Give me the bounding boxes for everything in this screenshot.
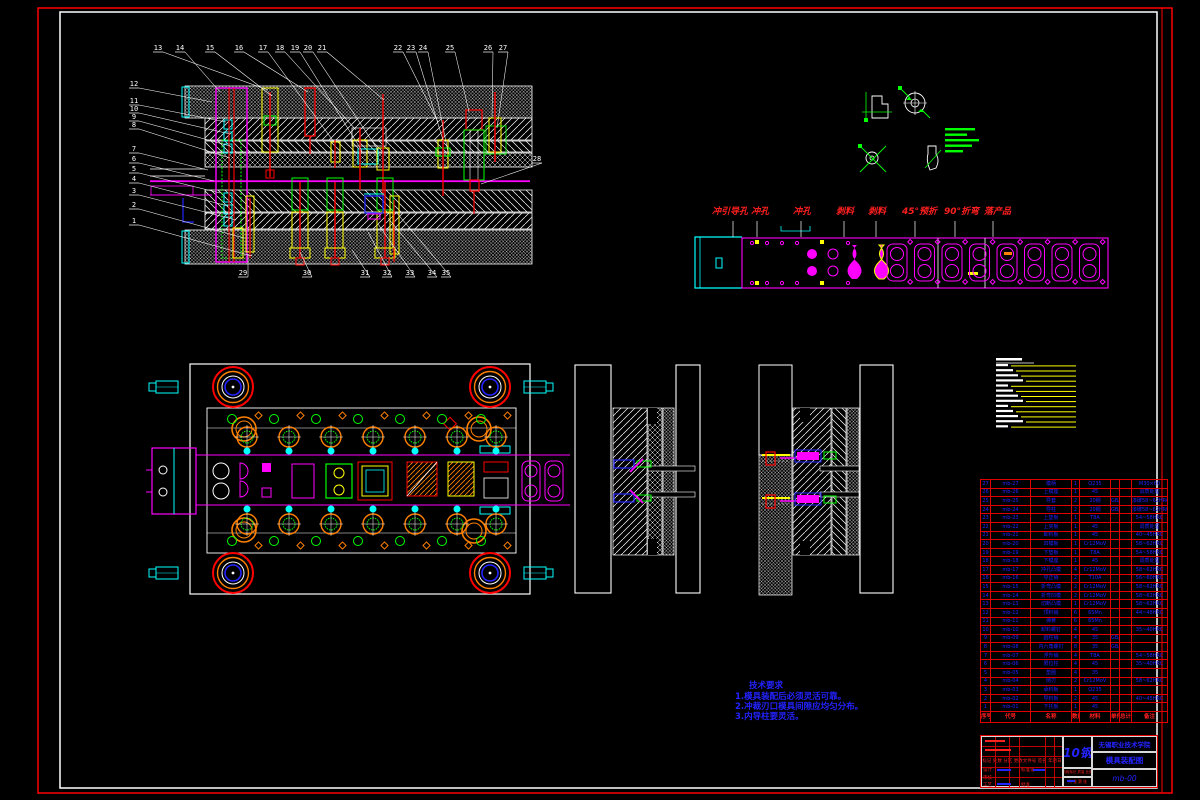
strip-cell-hole	[946, 265, 959, 278]
strip-cell	[997, 244, 1017, 281]
stage-row: 阶段标记 质量 比例	[1063, 768, 1092, 777]
bom-cell	[1120, 703, 1132, 712]
bom-cell	[1111, 480, 1120, 489]
bom-cell: 27	[981, 480, 991, 489]
bom-cell: 35	[1080, 669, 1111, 678]
signature-mark	[997, 783, 1011, 785]
bom-cell: 19	[981, 548, 991, 557]
strip-cell-hole	[891, 265, 904, 278]
bom-cell: Q235	[1080, 686, 1111, 695]
bom-cell: 导料板	[1031, 694, 1072, 703]
bom-cell	[1120, 514, 1132, 523]
bom-row: 1mb-01下托板145	[981, 703, 1168, 712]
bom-cell: Cr12MoV	[1080, 600, 1111, 609]
bom-cell: 导柱	[1031, 505, 1072, 514]
bom-cell	[1111, 686, 1120, 695]
strip-cell	[970, 244, 990, 281]
strip-cell-notch	[990, 239, 995, 244]
legend-text-mark	[996, 405, 1008, 407]
bom-cell	[1111, 540, 1120, 549]
green-annotation-mark	[945, 150, 963, 152]
signature-mark	[985, 740, 1005, 742]
bom-cell: mb-02	[991, 694, 1031, 703]
bom-row: 11mb-11弹簧665Mn	[981, 617, 1168, 626]
bom-cell: 8	[981, 643, 991, 652]
bom-cell	[1120, 548, 1132, 557]
lifter-pin	[328, 506, 335, 513]
bom-cell: 54~58HRC	[1132, 548, 1168, 557]
legend-leader-line	[1026, 381, 1076, 382]
bom-cell: 45	[1080, 557, 1111, 566]
bom-cell: 10	[981, 626, 991, 635]
legend-leader-line	[1026, 422, 1076, 423]
bom-cell: 35	[1080, 643, 1111, 652]
bom-cell: 切断凸模	[1031, 600, 1072, 609]
bom-cell	[1132, 617, 1168, 626]
bom-cell: mb-25	[991, 497, 1031, 506]
diamond-pin	[423, 542, 430, 549]
bom-cell: 18	[981, 557, 991, 566]
bom-cell	[1120, 634, 1132, 643]
bom-cell: 1	[1072, 540, 1080, 549]
bom-cell: 4	[1072, 634, 1080, 643]
bom-cell: mb-18	[991, 557, 1031, 566]
technical-notes: 技术要求 1.模具装配后必须灵活可靠。2.冲裁刃口模具间隙应均匀分布。3.内导柱…	[735, 681, 863, 722]
bom-cell: mb-07	[991, 651, 1031, 660]
bom-cell	[1111, 531, 1120, 540]
bom-cell: 21	[981, 531, 991, 540]
strip-cell-notch	[990, 279, 995, 284]
bom-cell	[1120, 677, 1132, 686]
bom-cell: mb-09	[991, 634, 1031, 643]
bom-cell: mb-13	[991, 600, 1031, 609]
balloon-number: 27	[499, 44, 507, 52]
bom-cell: GB/T 2861	[1111, 505, 1120, 514]
bom-cell: 26	[981, 488, 991, 497]
exit-strip	[522, 461, 563, 501]
bom-cell: mb-27	[991, 480, 1031, 489]
titleblock-rule	[1054, 737, 1055, 787]
strip-cell-notch	[1100, 279, 1105, 284]
balloon-number: 18	[276, 44, 284, 52]
bom-cell	[1120, 574, 1132, 583]
bom-cell	[1132, 703, 1168, 712]
bom-cell: M30×60	[1132, 480, 1168, 489]
bom-cell: mb-04	[991, 677, 1031, 686]
bom-cell: 下托板	[1031, 703, 1072, 712]
bom-cell: 下模座	[1031, 557, 1072, 566]
diamond-pin	[255, 412, 262, 419]
bom-cell: Cr12MoV	[1080, 583, 1111, 592]
bom-cell: 6	[1072, 617, 1080, 626]
feeder-bracket	[146, 448, 196, 514]
bom-cell: mb-03	[991, 686, 1031, 695]
bom-cell: mb-17	[991, 565, 1031, 574]
bom-cell: 58~62HRC	[1132, 591, 1168, 600]
bom-cell: 2	[1072, 694, 1080, 703]
balloon-number: 25	[446, 44, 454, 52]
bom-cell	[1111, 660, 1120, 669]
bom-cell: mb-24	[991, 505, 1031, 514]
legend-text-mark	[996, 410, 1013, 412]
signature-mark	[1067, 780, 1075, 782]
legend-text-mark	[996, 374, 1018, 376]
titleblock-rule	[1019, 737, 1020, 787]
strip-cell	[887, 244, 907, 281]
bom-cell: 20钢	[1080, 497, 1111, 506]
legend-text-mark	[996, 379, 1023, 381]
signature-mark	[985, 749, 1011, 751]
strip-cell-hole	[918, 248, 931, 261]
bom-cell: 45	[1080, 660, 1111, 669]
note-line: 3.内导柱要灵活。	[735, 712, 863, 722]
diamond-pin	[381, 412, 388, 419]
bom-cell: Cr12MoV	[1080, 565, 1111, 574]
bom-cell: 2	[1072, 497, 1080, 506]
bom-cell: Cr12MoV	[1080, 591, 1111, 600]
balloon-number: 15	[206, 44, 214, 52]
strip-process-label: 90°折弯	[944, 207, 979, 217]
diamond-pin	[423, 412, 430, 419]
legend-leader-line	[1016, 371, 1076, 372]
center-mark	[232, 386, 235, 389]
lifter-pin	[370, 448, 377, 455]
balloon-number: 19	[291, 44, 299, 52]
lifter-pin	[493, 506, 500, 513]
bom-cell	[1120, 557, 1132, 566]
lifter-pin	[286, 506, 293, 513]
legend-leader-line	[1016, 391, 1076, 392]
bom-cell	[1111, 626, 1120, 635]
bom-row: 20mb-20凹模板1Cr12MoV58~62HRC	[981, 540, 1168, 549]
bom-cell	[1111, 651, 1120, 660]
small-punch	[438, 415, 447, 424]
strip-process-label: 冲孔	[793, 207, 811, 217]
bom-cell	[1120, 583, 1132, 592]
legend-leader-line	[1011, 365, 1076, 366]
center-mark	[489, 572, 492, 575]
bom-cell	[1132, 634, 1168, 643]
legend-text-mark	[996, 420, 1023, 422]
diamond-pin	[504, 542, 511, 549]
bom-cell: 15	[981, 583, 991, 592]
bom-cell: 侧刃	[1031, 677, 1072, 686]
bom-cell: 45	[1080, 488, 1111, 497]
balloon-number: 10	[130, 105, 138, 113]
strip-cell-hole	[946, 248, 959, 261]
feeder-bracket-blue	[183, 198, 194, 222]
strip-cell-notch	[963, 279, 968, 284]
edge-bolt-head	[149, 383, 156, 391]
bom-cell: 45	[1080, 703, 1111, 712]
bom-cell: 冲孔凸模	[1031, 565, 1072, 574]
bom-cell: 顶料销	[1031, 608, 1072, 617]
diamond-pin	[339, 412, 346, 419]
diamond-pin	[297, 542, 304, 549]
strip-cell-notch	[1100, 239, 1105, 244]
strip-cell	[1080, 244, 1100, 281]
note-line: 1.模具装配后必须灵活可靠。	[735, 692, 863, 702]
legend-leader-line	[1021, 416, 1076, 417]
bom-cell: mb-05	[991, 669, 1031, 678]
strip-cell-hole	[1028, 248, 1041, 261]
strip-cell-hole	[1001, 265, 1014, 278]
bom-cell: 卸料螺钉	[1031, 626, 1072, 635]
bom-cell	[1111, 600, 1120, 609]
bom-cell: 3	[981, 686, 991, 695]
bom-cell: 1	[1072, 548, 1080, 557]
strip-cell-hole	[918, 265, 931, 278]
bom-cell: mb-19	[991, 548, 1031, 557]
titleblock-rule	[1009, 737, 1010, 787]
bom-cell: 渗碳58~62HRC	[1132, 497, 1168, 506]
die-stations	[213, 446, 510, 514]
bom-cell: 折弯凹模	[1031, 591, 1072, 600]
balloon-number: 6	[132, 155, 136, 163]
bom-cell: 58~62HRC	[1132, 677, 1168, 686]
edge-bolt-head	[546, 383, 553, 391]
bom-cell: 35	[1080, 634, 1111, 643]
titleblock-rule	[982, 777, 1062, 778]
bom-cell: 45	[1080, 531, 1111, 540]
signature-mark	[1033, 769, 1045, 771]
bom-cell: 上夹板	[1031, 522, 1072, 531]
bom-row: 4mb-04侧刃2Cr12MoV58~62HRC	[981, 677, 1168, 686]
leader-line	[163, 52, 268, 90]
bom-cell: 25	[981, 497, 991, 506]
strip-cell-notch	[1018, 239, 1023, 244]
lifter-pin	[412, 448, 419, 455]
bom-cell: 4	[1072, 651, 1080, 660]
bom-row: 9mb-09圆柱销435GB/T 119.1	[981, 634, 1168, 643]
section-view-a	[575, 365, 700, 593]
bom-cell: 上垫板	[1031, 514, 1072, 523]
balloon-number: 35	[442, 269, 450, 277]
legend-leader-line	[1016, 411, 1076, 412]
bom-cell: T10A	[1080, 574, 1111, 583]
bom-cell	[1120, 565, 1132, 574]
bom-cell: GB/T 119.1	[1111, 634, 1120, 643]
bom-row: 17mb-17冲孔凸模4Cr12MoV58~62HRC	[981, 565, 1168, 574]
bom-cell: 5	[981, 669, 991, 678]
strip-process-label: 冲引导孔 冲孔	[712, 207, 769, 217]
small-punch	[354, 537, 363, 546]
green-annotation-mark	[945, 128, 975, 130]
bom-row: 5mb-05垫圈435	[981, 669, 1168, 678]
bom-cell	[1120, 540, 1132, 549]
bom-cell: 1	[1072, 514, 1080, 523]
cad-drawing-canvas: 1314151617181920212223242526272812111098…	[0, 0, 1200, 800]
bom-cell: 2	[981, 694, 991, 703]
small-punch	[270, 415, 279, 424]
strip-cell-notch	[1045, 279, 1050, 284]
balloon-number: 31	[361, 269, 369, 277]
balloon-number: 21	[318, 44, 326, 52]
sheet-cell: 共 张 第 张	[1063, 777, 1092, 787]
bom-cell: 2	[1072, 505, 1080, 514]
bom-cell: 8	[1072, 643, 1080, 652]
lifter-pin	[328, 448, 335, 455]
balloon-number: 20	[304, 44, 312, 52]
bom-cell: 20	[981, 540, 991, 549]
balloon-number: 8	[132, 121, 136, 129]
strip-cell-hole	[1056, 248, 1069, 261]
bom-cell	[1120, 617, 1132, 626]
titleblock-rule	[982, 746, 1062, 747]
bom-cell: mb-15	[991, 583, 1031, 592]
lifter-pin	[454, 506, 461, 513]
bom-cell: 35~40HRC	[1132, 626, 1168, 635]
bom-row: 18mb-18下模座145调质处理	[981, 557, 1168, 566]
signature-mark	[997, 769, 1011, 771]
bom-row: 27mb-27模柄1Q235M30×60	[981, 480, 1168, 489]
bom-cell: 4	[981, 677, 991, 686]
bom-cell: 22	[981, 522, 991, 531]
bom-row: 19mb-19下垫板1T8A54~58HRC	[981, 548, 1168, 557]
section-view-b	[759, 365, 893, 595]
strip-cell	[915, 244, 935, 281]
bom-cell	[1111, 677, 1120, 686]
bom-cell: 2	[1072, 583, 1080, 592]
bom-cell: 1	[981, 703, 991, 712]
balloon-number: 29	[239, 269, 247, 277]
drawing-title-cell: 模具装配图	[1092, 752, 1157, 769]
balloon-number: 33	[406, 269, 414, 277]
strip-cell-hole	[1083, 248, 1096, 261]
balloon-number: 9	[132, 113, 136, 121]
bom-header-cell: 备注	[1132, 712, 1168, 723]
bom-row: 25mb-25导套220钢GB/T 2861渗碳58~62HRC	[981, 497, 1168, 506]
strip-cell-hole	[1083, 265, 1096, 278]
bom-cell: 1	[1072, 686, 1080, 695]
bom-cell: mb-16	[991, 574, 1031, 583]
bom-cell: 14	[981, 591, 991, 600]
strip-cell-notch	[1018, 279, 1023, 284]
bom-cell: 圆柱销	[1031, 634, 1072, 643]
bom-row: 24mb-24导柱220钢GB/T 2861渗碳58~62HRC	[981, 505, 1168, 514]
bom-cell: 2	[1072, 574, 1080, 583]
bom-cell: 45	[1080, 522, 1111, 531]
bom-cell: T8A	[1080, 651, 1111, 660]
bom-cell: 54~58HRC	[1132, 514, 1168, 523]
legend-leader-line	[1021, 396, 1076, 397]
bom-cell	[1111, 522, 1120, 531]
bom-cell: mb-08	[991, 643, 1031, 652]
center-mark	[232, 572, 235, 575]
bom-row: 13mb-13切断凸模1Cr12MoV58~62HRC	[981, 600, 1168, 609]
bom-cell: 调质处理	[1132, 522, 1168, 531]
bom-cell	[1111, 703, 1120, 712]
bom-cell	[1132, 669, 1168, 678]
legend-leader-line	[1026, 401, 1076, 402]
bom-cell: 1	[1072, 557, 1080, 566]
bom-cell: 6	[981, 660, 991, 669]
strip-cell-hole	[891, 248, 904, 261]
bom-cell	[1111, 669, 1120, 678]
bom-cell: 58~62HRC	[1132, 583, 1168, 592]
bom-cell	[1120, 531, 1132, 540]
legend-leader-line	[1021, 376, 1076, 377]
leader-line	[139, 153, 208, 170]
strip-process-label: 剥料	[868, 207, 886, 217]
diamond-pin	[465, 412, 472, 419]
bom-cell	[1111, 608, 1120, 617]
titleblock-rule	[982, 767, 1062, 768]
bom-cell: 4	[1072, 626, 1080, 635]
strip-cell-hole	[973, 265, 986, 278]
bom-cell: 44~48HRC	[1132, 608, 1168, 617]
legend-leader-line	[1011, 386, 1076, 387]
bom-cell: mb-21	[991, 531, 1031, 540]
edge-bolt-head	[546, 569, 553, 577]
bom-cell: mb-06	[991, 660, 1031, 669]
bom-cell: 9	[981, 634, 991, 643]
bom-cell: 13	[981, 600, 991, 609]
role-proc: 工艺	[983, 782, 992, 788]
bom-cell: 2	[1072, 591, 1080, 600]
balloon-number: 23	[407, 44, 415, 52]
legend-text-mark	[996, 425, 1008, 427]
balloon-number: 14	[176, 44, 184, 52]
leader-line	[139, 163, 214, 181]
note-line: 2.冲裁刃口模具间隙应均匀分布。	[735, 702, 863, 712]
cross-section-view	[150, 86, 532, 265]
bom-cell: T8A	[1080, 548, 1111, 557]
strip-cell	[1025, 244, 1045, 281]
bom-cell	[1120, 669, 1132, 678]
balloon-number: 34	[428, 269, 436, 277]
diamond-pin	[255, 542, 262, 549]
bom-cell: 1	[1072, 600, 1080, 609]
bom-header-cell: 代号	[991, 712, 1031, 723]
bom-cell	[1120, 626, 1132, 635]
bom-parts-table: 27mb-27模柄1Q235M30×6026mb-26上模座145调质处理25m…	[980, 479, 1168, 723]
bom-header-cell: 名称	[1031, 712, 1072, 723]
diamond-pin	[381, 542, 388, 549]
bom-row: 26mb-26上模座145调质处理	[981, 488, 1168, 497]
bom-cell: 内六角螺钉	[1031, 643, 1072, 652]
bom-cell	[1120, 651, 1132, 660]
bom-cell: 下垫板	[1031, 548, 1072, 557]
small-punch	[312, 415, 321, 424]
bom-cell: 58~62HRC	[1132, 600, 1168, 609]
bom-cell	[1132, 686, 1168, 695]
legend-text-mark	[996, 400, 1023, 402]
bom-cell: 1	[1072, 522, 1080, 531]
bom-cell: Cr12MoV	[1080, 677, 1111, 686]
bom-cell: T8A	[1080, 514, 1111, 523]
diamond-pin	[339, 542, 346, 549]
bom-cell	[1120, 608, 1132, 617]
bom-cell: 导套	[1031, 497, 1072, 506]
strip-cell	[1052, 244, 1072, 281]
balloon-number: 17	[259, 44, 267, 52]
lifter-pin	[493, 448, 500, 455]
bom-cell: mb-22	[991, 522, 1031, 531]
bom-row: 12mb-12顶料销665Mn44~48HRC	[981, 608, 1168, 617]
bom-cell	[1120, 686, 1132, 695]
bom-cell: 垫圈	[1031, 669, 1072, 678]
bom-cell: 凹模板	[1031, 540, 1072, 549]
balloon-number: 3	[132, 187, 136, 195]
bom-cell: mb-14	[991, 591, 1031, 600]
bom-header-cell: 材料	[1080, 712, 1111, 723]
strip-cell-notch	[908, 239, 913, 244]
bom-cell	[1120, 660, 1132, 669]
bom-cell: 23	[981, 514, 991, 523]
strip-cell-notch	[1045, 239, 1050, 244]
small-punch	[312, 537, 321, 546]
